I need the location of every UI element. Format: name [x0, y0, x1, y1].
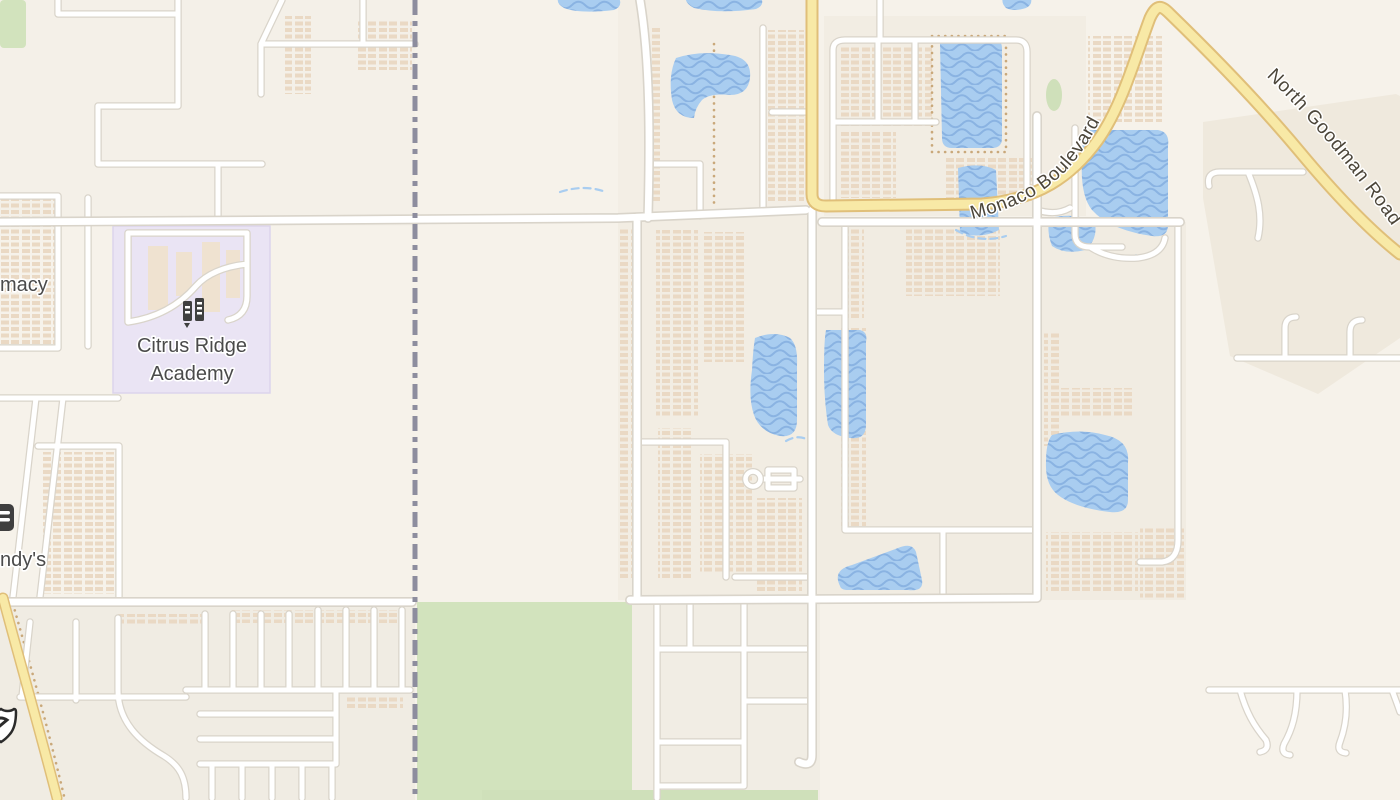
fast-food-icon[interactable] [0, 504, 14, 531]
open-land-area [1203, 94, 1400, 394]
greenspace [1046, 79, 1062, 111]
map-tiles: macy ndy's Citrus Ridge Academy Monaco B… [0, 0, 1400, 800]
greenspace [0, 0, 26, 48]
academy-label-line2: Academy [150, 363, 233, 385]
pond [940, 40, 1002, 148]
greenspace-field [417, 602, 632, 800]
greenspace-strip [482, 790, 818, 800]
landuse-areas [0, 0, 1400, 800]
pond [750, 334, 797, 436]
wendys-label: ndy's [0, 549, 46, 571]
pharmacy-label: macy [0, 274, 48, 296]
academy-label-line1: Citrus Ridge [137, 335, 247, 357]
map-canvas[interactable]: macy ndy's Citrus Ridge Academy Monaco B… [0, 0, 1400, 800]
